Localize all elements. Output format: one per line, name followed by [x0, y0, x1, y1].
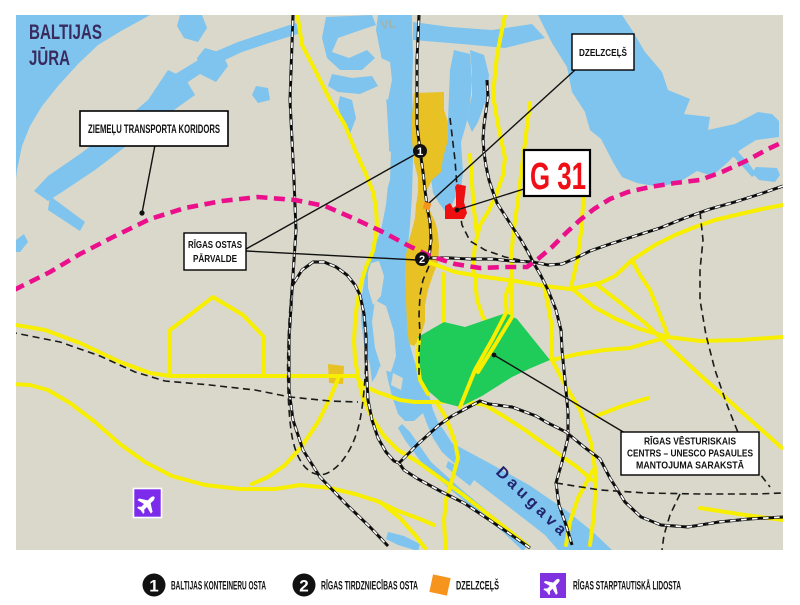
svg-text:BALTIJAS: BALTIJAS [29, 21, 102, 44]
svg-text:PĀRVALDE: PĀRVALDE [193, 253, 237, 265]
svg-text:BALTIJAS KONTEINERU OSTA: BALTIJAS KONTEINERU OSTA [171, 579, 266, 593]
svg-text:2: 2 [299, 577, 308, 596]
svg-text:RĪGAS TIRDZNIECĪBAS OSTA: RĪGAS TIRDZNIECĪBAS OSTA [321, 579, 418, 593]
svg-text:RĪGAS VĒSTURISKAIS: RĪGAS VĒSTURISKAIS [644, 436, 736, 448]
svg-text:DZELZCEĻŠ: DZELZCEĻŠ [456, 578, 499, 593]
svg-text:JŪRA: JŪRA [29, 47, 70, 70]
svg-text:RĪGAS OSTAS: RĪGAS OSTAS [188, 239, 242, 251]
svg-text:G 31: G 31 [530, 156, 586, 198]
svg-text:VL: VL [380, 16, 397, 32]
svg-text:RĪGAS STARPTAUTISKĀ LIDOSTA: RĪGAS STARPTAUTISKĀ LIDOSTA [573, 579, 681, 593]
svg-text:MANTOJUMA SARAKSTĀ: MANTOJUMA SARAKSTĀ [636, 460, 745, 472]
svg-text:2: 2 [419, 254, 425, 266]
svg-text:1: 1 [149, 577, 158, 596]
svg-text:CENTRS – UNESCO PASAULES: CENTRS – UNESCO PASAULES [627, 449, 753, 460]
svg-text:DZELZCEĻŠ: DZELZCEĻŠ [579, 46, 627, 59]
svg-text:1: 1 [417, 146, 423, 158]
svg-text:ZIEMEĻU TRANSPORTA KORIDORS: ZIEMEĻU TRANSPORTA KORIDORS [88, 124, 220, 136]
